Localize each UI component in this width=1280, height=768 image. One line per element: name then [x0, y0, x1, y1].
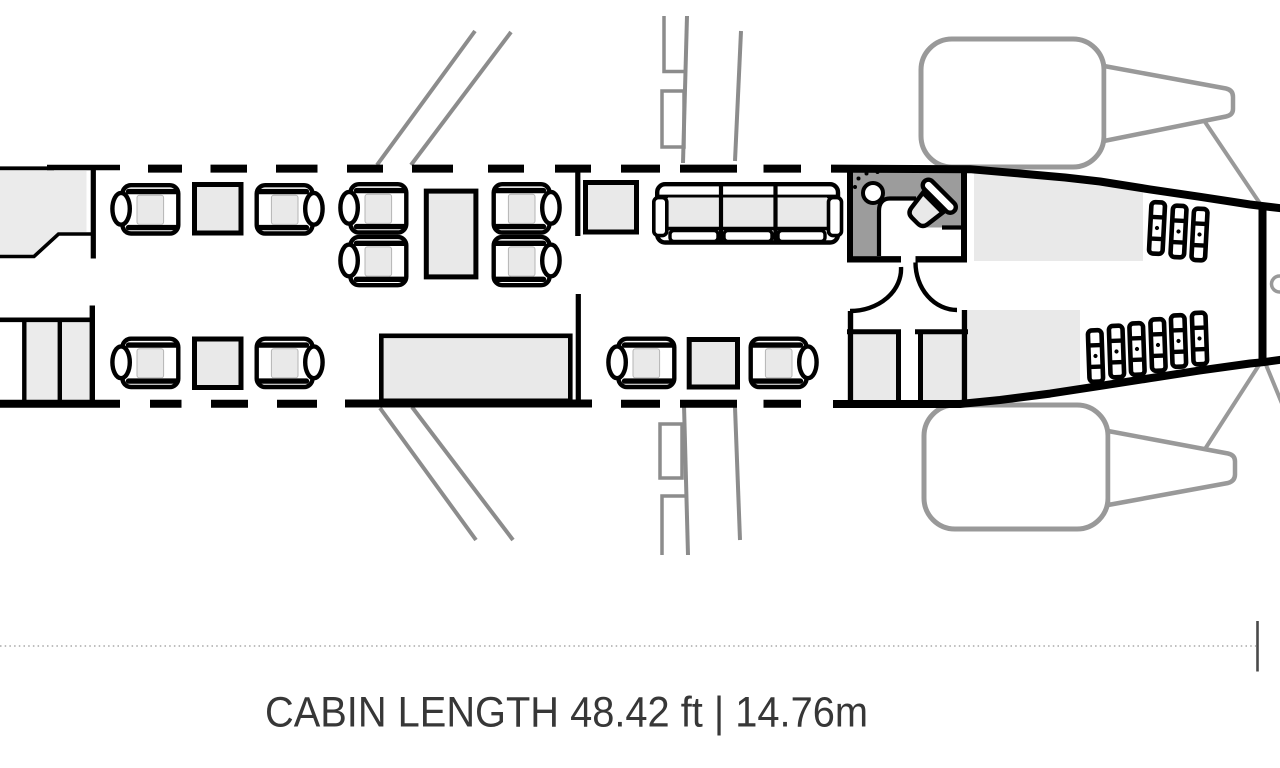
svg-text:CABIN LENGTH 48.42 ft | 14.76m: CABIN LENGTH 48.42 ft | 14.76m	[265, 690, 868, 737]
